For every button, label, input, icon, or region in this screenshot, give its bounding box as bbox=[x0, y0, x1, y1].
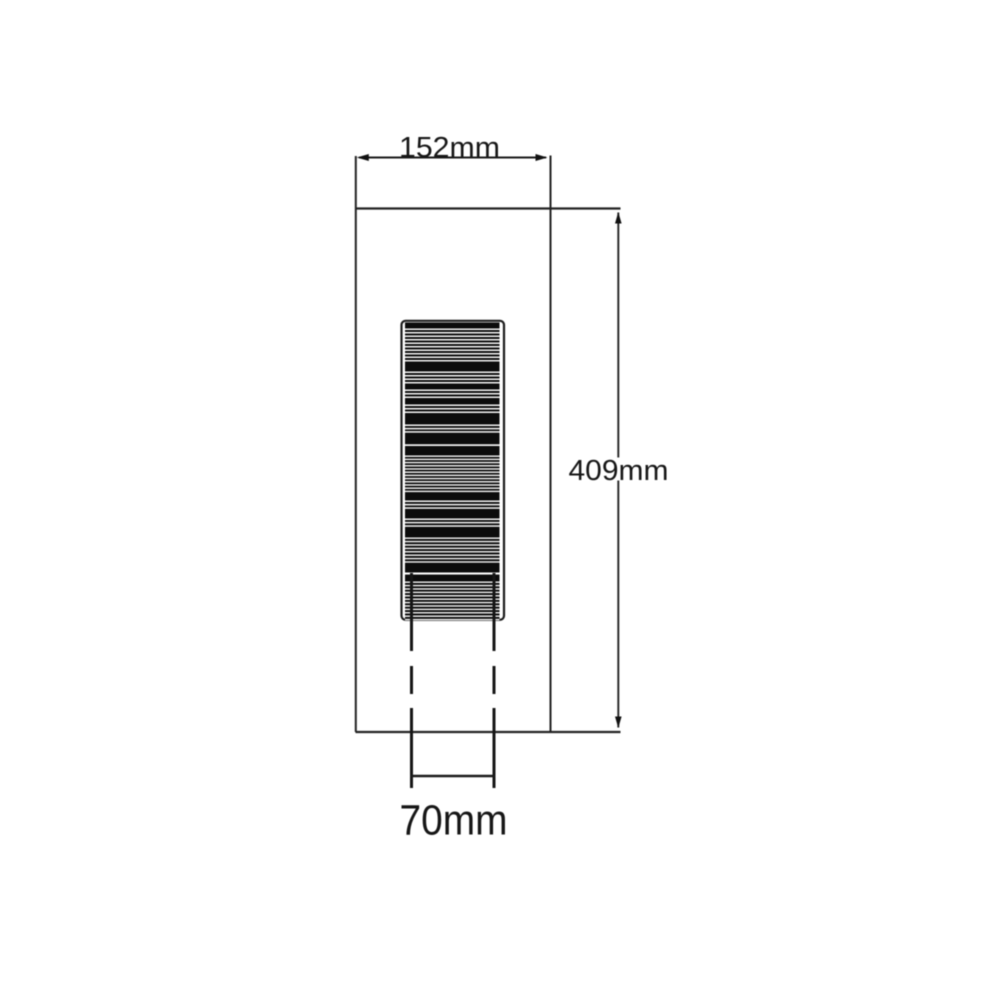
svg-text:409mm: 409mm bbox=[569, 455, 669, 487]
svg-text:70mm: 70mm bbox=[400, 797, 508, 845]
svg-text:152mm: 152mm bbox=[399, 132, 500, 164]
